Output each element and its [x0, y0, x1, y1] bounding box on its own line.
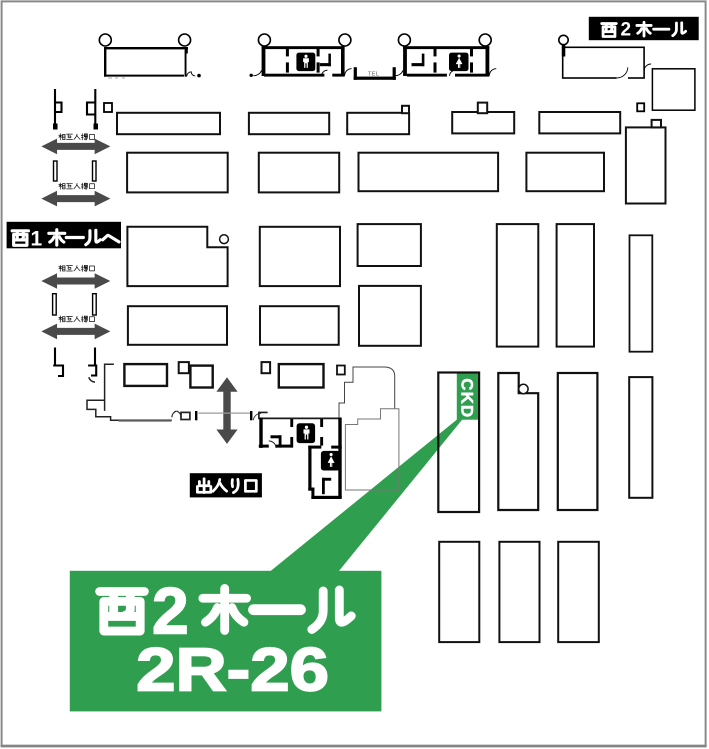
svg-text:TEL: TEL: [368, 72, 379, 78]
svg-text:1: 1: [31, 228, 43, 251]
svg-text:2: 2: [621, 20, 632, 41]
svg-text:2R-26: 2R-26: [136, 636, 329, 704]
svg-text:CKD: CKD: [458, 378, 477, 418]
